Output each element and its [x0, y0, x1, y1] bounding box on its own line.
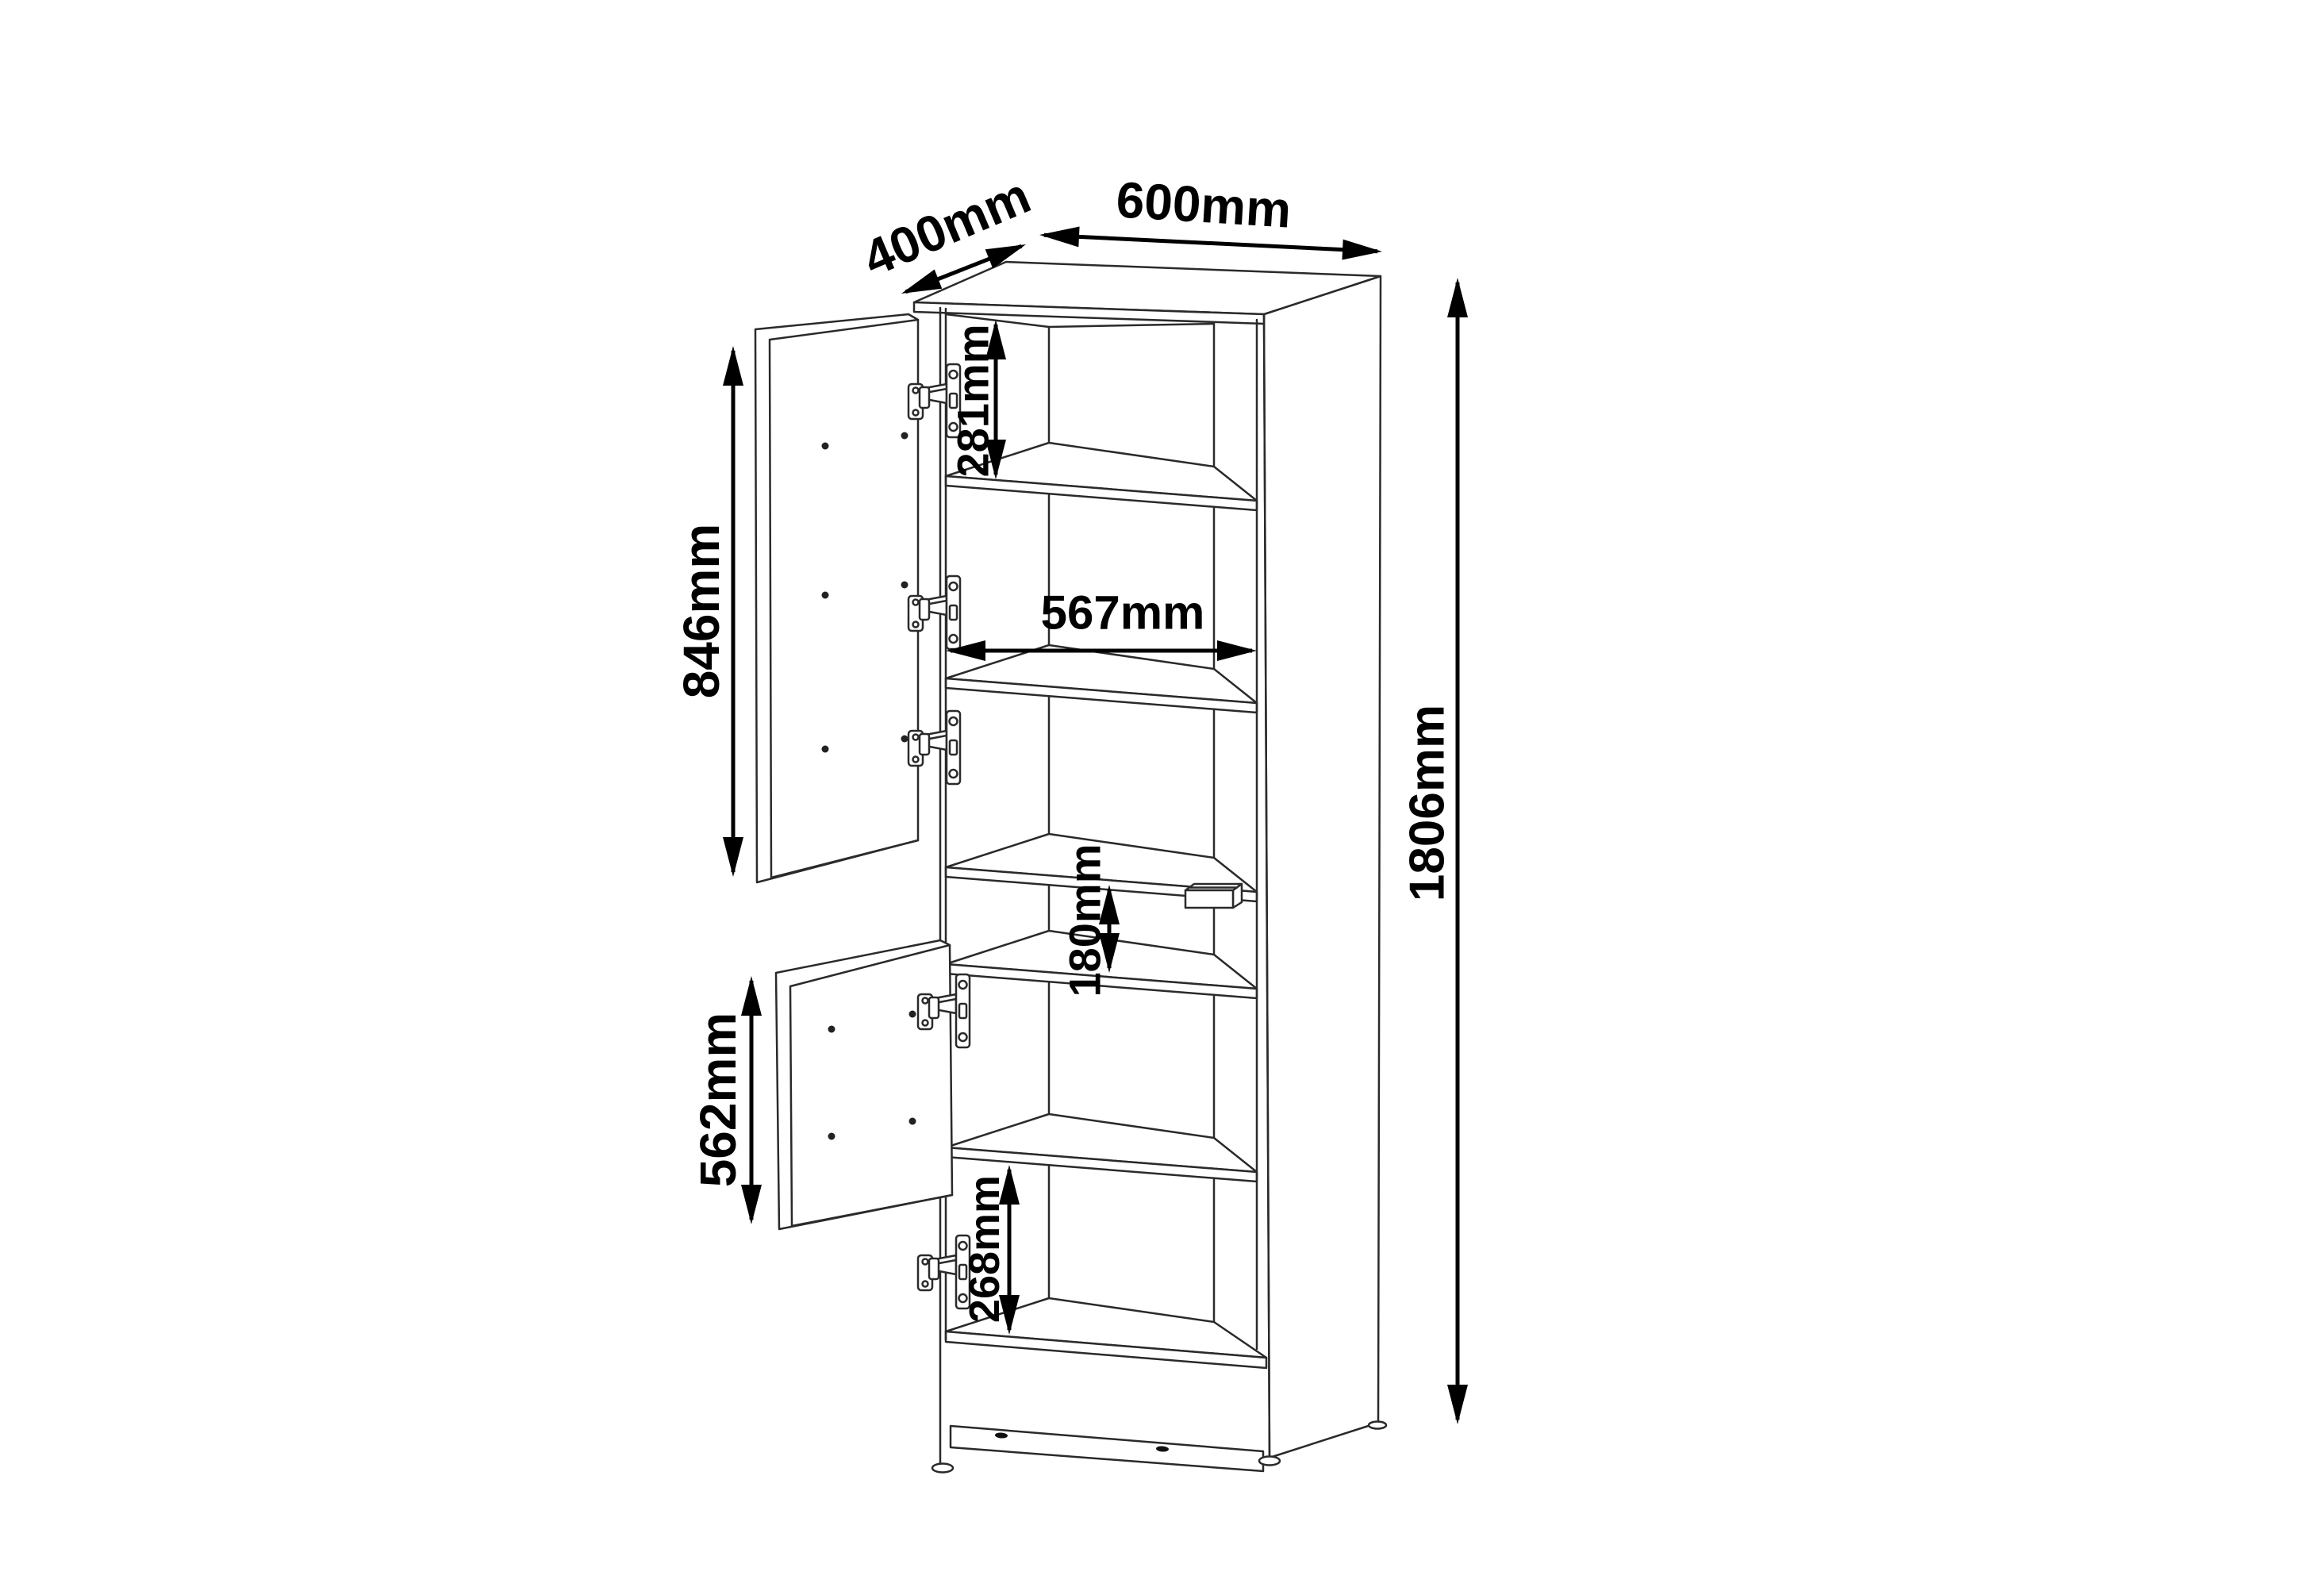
upper-door-open [755, 314, 918, 882]
plinth [951, 1426, 1263, 1471]
shelf-5 [946, 1114, 1257, 1182]
foot-front-left [932, 1464, 953, 1473]
dimension-line-width [1044, 235, 1377, 251]
dimension-arrowhead-icon [1217, 640, 1257, 661]
right-side-panel [1264, 276, 1381, 1458]
dimension-label-niche: 180mm [1060, 843, 1110, 997]
foot-front-right [1259, 1457, 1280, 1466]
dimension-arrowhead-icon [723, 346, 743, 386]
dimension-arrowhead-icon [741, 976, 762, 1016]
foot-back-right [1369, 1422, 1386, 1429]
dimension-label-top-compartment: 281mm [948, 324, 998, 477]
dimension-label-bottom-compartment: 268mm [961, 1175, 1008, 1323]
dimension-arrowhead-icon [1447, 1385, 1468, 1424]
technical-drawing-canvas: 400mm600mm281mm846mm567mm180mm562mm268mm… [0, 0, 2324, 1587]
drawing-page: 400mm600mm281mm846mm567mm180mm562mm268mm… [0, 0, 2324, 1587]
niche-handle [1185, 884, 1242, 908]
dimension-label-lower-door: 562mm [690, 1013, 747, 1188]
dimension-label-width: 600mm [1115, 171, 1293, 238]
dimension-arrowhead-icon [1447, 278, 1468, 317]
dimension-arrowhead-icon [723, 837, 743, 877]
dimension-arrowhead-icon [741, 1185, 762, 1224]
dimension-label-total-height: 1806mm [1400, 705, 1455, 901]
lower-door-open [776, 940, 952, 1229]
dimension-label-upper-door: 846mm [673, 524, 730, 699]
dimension-label-interior-width: 567mm [1041, 586, 1205, 640]
shelf-2 [946, 645, 1257, 713]
